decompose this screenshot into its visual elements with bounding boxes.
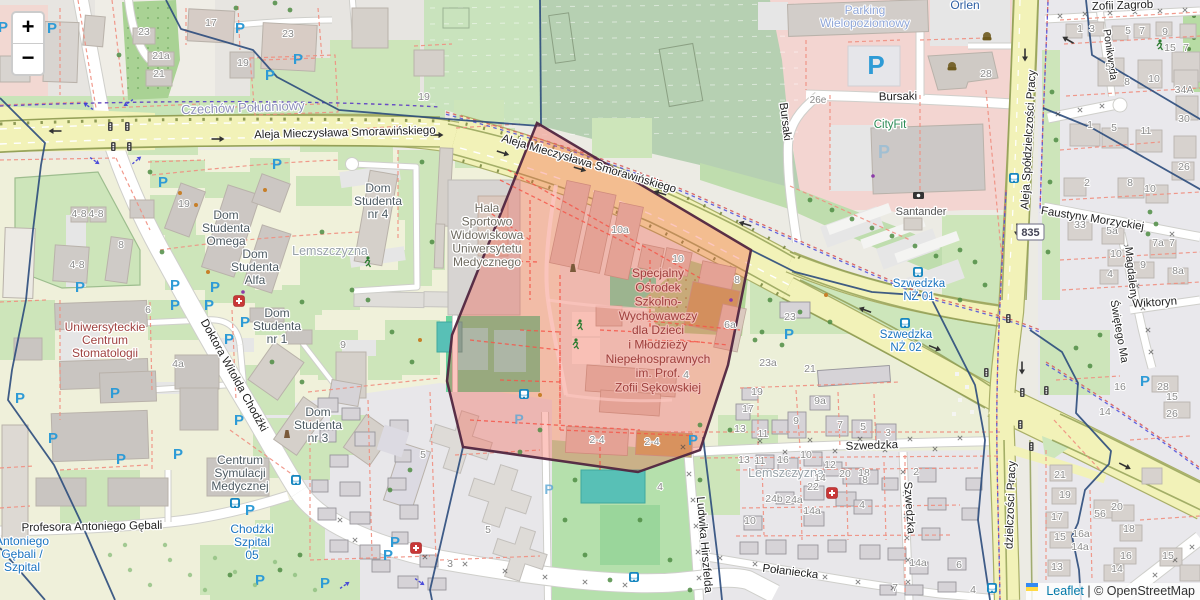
svg-text:Sportowo: Sportowo [462,215,513,229]
svg-text:11: 11 [758,428,769,440]
svg-text:23a: 23a [759,357,777,369]
svg-text:Alfa: Alfa [245,273,266,287]
svg-text:10: 10 [744,515,756,527]
svg-text:14: 14 [814,472,826,484]
svg-text:Szwedzka: Szwedzka [880,329,933,341]
svg-text:7: 7 [1139,25,1145,37]
svg-text:7a: 7a [1152,237,1164,249]
svg-text:Chodżki: Chodżki [230,522,273,536]
svg-text:34A: 34A [1175,84,1194,96]
svg-text:Studenta: Studenta [253,319,301,333]
svg-text:4: 4 [970,584,976,596]
svg-text:nr 3: nr 3 [308,431,329,445]
svg-text:7: 7 [1169,237,1175,249]
svg-text:30: 30 [1178,113,1190,125]
svg-text:5: 5 [420,449,426,461]
svg-text:Antoniego: Antoniego [0,534,49,548]
svg-text:16: 16 [1114,381,1126,393]
svg-text:4·8: 4·8 [71,208,86,220]
svg-text:Uniwersyteckie: Uniwersyteckie [65,320,146,334]
svg-text:4: 4 [859,499,865,511]
svg-text:10: 10 [1148,73,1160,85]
svg-text:5: 5 [485,524,491,536]
svg-text:19: 19 [1059,489,1071,501]
svg-text:10: 10 [672,253,684,265]
svg-text:P: P [75,279,85,296]
svg-text:Dom: Dom [213,208,238,222]
svg-text:3: 3 [885,427,891,439]
svg-text:18: 18 [1123,523,1135,535]
svg-text:P: P [210,279,220,296]
svg-text:Uniwersytetu: Uniwersytetu [452,242,521,256]
svg-text:Zofii Sękowskiej: Zofii Sękowskiej [615,380,701,394]
svg-text:Santander: Santander [896,206,947,218]
svg-text:56: 56 [1094,508,1106,520]
svg-text:13: 13 [734,423,746,435]
svg-text:19: 19 [418,91,430,103]
svg-text:9: 9 [1140,259,1146,271]
svg-text:4a: 4a [172,358,184,370]
svg-text:P: P [235,20,245,37]
svg-text:CityFit: CityFit [874,119,907,131]
svg-text:835: 835 [1021,227,1039,239]
svg-text:Zofii Zagrob: Zofii Zagrob [1092,0,1154,13]
svg-text:Studenta: Studenta [231,260,279,274]
svg-text:P: P [158,174,168,191]
svg-text:4: 4 [657,481,663,493]
svg-text:Niepełnosprawnych: Niepełnosprawnych [606,352,711,366]
svg-text:2: 2 [913,466,919,478]
svg-text:23: 23 [138,26,150,38]
svg-text:5: 5 [1105,61,1111,73]
svg-text:2-4: 2-4 [644,436,659,448]
svg-text:5: 5 [1125,25,1131,37]
svg-text:6a: 6a [724,319,736,331]
svg-text:9: 9 [340,339,346,351]
svg-text:Szwedzka: Szwedzka [893,278,946,290]
svg-text:13: 13 [738,454,750,466]
svg-text:17: 17 [1051,511,1063,523]
svg-text:1: 1 [1077,23,1083,35]
svg-text:P: P [867,50,884,80]
svg-text:P: P [240,314,250,331]
svg-text:Hala: Hala [475,201,500,215]
svg-text:10a: 10a [611,224,629,236]
svg-text:Szpital: Szpital [4,560,40,574]
svg-text:Stomatologii: Stomatologii [72,346,138,360]
svg-text:Centrum: Centrum [82,333,128,347]
svg-text:15: 15 [1162,550,1174,562]
svg-text:Dom: Dom [365,181,390,195]
svg-text:dla Dzieci: dla Dzieci [632,323,684,337]
svg-text:21: 21 [153,68,165,80]
svg-text:Parking: Parking [845,3,886,17]
svg-text:P: P [170,297,180,314]
svg-text:Gębali /: Gębali / [1,547,43,561]
svg-text:P: P [224,331,234,348]
svg-text:4·8: 4·8 [88,208,103,220]
svg-text:Studenta: Studenta [294,418,342,432]
svg-text:Symulacji: Symulacji [214,466,265,480]
svg-text:P: P [1140,373,1150,390]
svg-text:16: 16 [1120,550,1132,562]
svg-text:5a: 5a [1106,225,1118,237]
svg-text:28: 28 [980,68,992,80]
svg-text:26: 26 [1166,408,1178,420]
svg-text:3: 3 [1089,23,1095,35]
svg-text:15: 15 [1164,42,1176,54]
svg-text:7: 7 [1183,42,1189,54]
svg-text:11: 11 [1141,125,1152,137]
svg-text:14a: 14a [1071,541,1089,553]
svg-text:Szkolno-: Szkolno- [635,295,682,309]
svg-text:P: P [784,326,794,343]
svg-text:19: 19 [237,57,249,69]
svg-text:Widowiskowa: Widowiskowa [451,228,524,242]
svg-text:26: 26 [1178,161,1190,173]
svg-text:8: 8 [1127,177,1133,189]
svg-text:P: P [234,412,244,429]
svg-text:5: 5 [1111,122,1117,134]
svg-text:im. Prof.: im. Prof. [636,366,681,380]
svg-text:13: 13 [1051,561,1063,573]
svg-text:9a: 9a [814,395,826,407]
svg-text:20: 20 [839,468,851,480]
svg-text:5: 5 [860,421,866,433]
svg-text:P: P [878,142,890,162]
svg-text:nr 4: nr 4 [368,207,389,221]
svg-text:Dom: Dom [264,306,289,320]
svg-text:8: 8 [1124,76,1130,88]
svg-text:2: 2 [1084,177,1090,189]
svg-text:Omega: Omega [206,234,246,248]
svg-text:Wielopoziomowy: Wielopoziomowy [820,16,910,30]
svg-text:8a: 8a [1172,265,1184,277]
svg-text:Ośrodek: Ośrodek [635,280,681,294]
svg-text:P: P [173,446,183,463]
svg-text:nr 1: nr 1 [267,332,288,346]
svg-text:Szpital: Szpital [234,535,270,549]
svg-text:10: 10 [800,449,812,461]
svg-text:P: P [383,547,393,564]
svg-text:19: 19 [178,198,190,210]
svg-text:P: P [544,481,553,497]
svg-text:Bursaki: Bursaki [879,91,918,104]
svg-text:P: P [265,67,275,84]
svg-text:17: 17 [205,17,217,29]
svg-text:NŻ 01: NŻ 01 [903,290,934,303]
svg-text:P: P [293,51,303,68]
svg-text:P: P [688,432,698,449]
svg-text:Profesora Antoniego Gębali: Profesora Antoniego Gębali [22,520,163,534]
svg-text:6: 6 [145,304,151,316]
svg-text:21: 21 [804,363,816,375]
svg-text:P: P [110,385,120,402]
svg-text:19: 19 [751,386,763,398]
svg-text:P: P [48,430,58,447]
svg-text:17: 17 [742,403,754,415]
svg-text:1: 1 [1087,119,1093,131]
svg-text:Medycznego: Medycznego [453,255,521,269]
svg-text:12: 12 [824,459,836,471]
svg-text:14a: 14a [909,557,927,569]
svg-text:16a: 16a [1072,528,1090,540]
svg-text:4·8: 4·8 [69,259,84,271]
svg-text:14a: 14a [803,505,821,517]
svg-text:8: 8 [862,474,868,486]
svg-text:Centrum: Centrum [217,453,263,467]
svg-text:Studenta: Studenta [354,194,402,208]
svg-text:23: 23 [784,311,796,323]
svg-text:14: 14 [1099,406,1111,418]
svg-text:P: P [245,502,255,519]
svg-text:15: 15 [1054,531,1066,543]
svg-text:8: 8 [118,239,124,251]
svg-text:4: 4 [683,369,689,381]
svg-text:8: 8 [734,274,740,286]
svg-text:15: 15 [1166,391,1178,403]
svg-text:P: P [204,297,214,314]
svg-text:9: 9 [1162,26,1168,38]
svg-text:21a: 21a [152,50,170,62]
svg-text:P: P [170,277,180,294]
svg-text:16: 16 [777,454,789,466]
svg-text:P: P [15,390,25,407]
svg-text:6: 6 [956,559,962,571]
svg-text:Orlen: Orlen [950,0,979,12]
svg-text:P: P [47,20,57,37]
svg-text:3: 3 [447,558,453,570]
svg-text:14: 14 [1111,563,1123,575]
svg-text:10: 10 [1110,248,1122,260]
svg-text:4: 4 [1107,268,1113,280]
svg-text:Specjalny: Specjalny [632,266,684,280]
svg-text:Dom: Dom [242,247,267,261]
svg-text:NŻ 02: NŻ 02 [890,341,921,354]
svg-text:10: 10 [1144,183,1156,195]
svg-text:05: 05 [245,548,259,562]
svg-text:Medycznej: Medycznej [211,479,268,493]
svg-text:7: 7 [837,419,843,431]
svg-text:Studenta: Studenta [202,221,250,235]
svg-text:i Młodzieży: i Młodzieży [628,338,687,352]
svg-text:21: 21 [1054,469,1066,481]
svg-text:20: 20 [1111,501,1123,513]
svg-text:26e: 26e [810,95,827,106]
svg-text:24b: 24b [765,493,783,505]
svg-text:Lemszczyzna: Lemszczyzna [292,244,368,258]
svg-text:P: P [320,575,330,592]
svg-text:7: 7 [892,582,898,594]
svg-text:Wychowawczy: Wychowawczy [619,309,698,323]
svg-text:24a: 24a [785,494,803,506]
svg-text:11: 11 [755,455,766,467]
svg-text:9: 9 [793,415,799,427]
svg-text:33: 33 [1074,219,1086,231]
svg-text:Szwedzka: Szwedzka [845,439,898,453]
svg-text:P: P [514,411,523,427]
svg-text:P: P [0,19,8,36]
svg-text:Dom: Dom [305,405,330,419]
svg-text:23: 23 [282,28,294,40]
svg-text:Lemszczyzna: Lemszczyzna [748,466,824,480]
svg-text:P: P [272,156,282,173]
svg-text:P: P [116,451,126,468]
svg-text:2-4: 2-4 [589,434,604,446]
